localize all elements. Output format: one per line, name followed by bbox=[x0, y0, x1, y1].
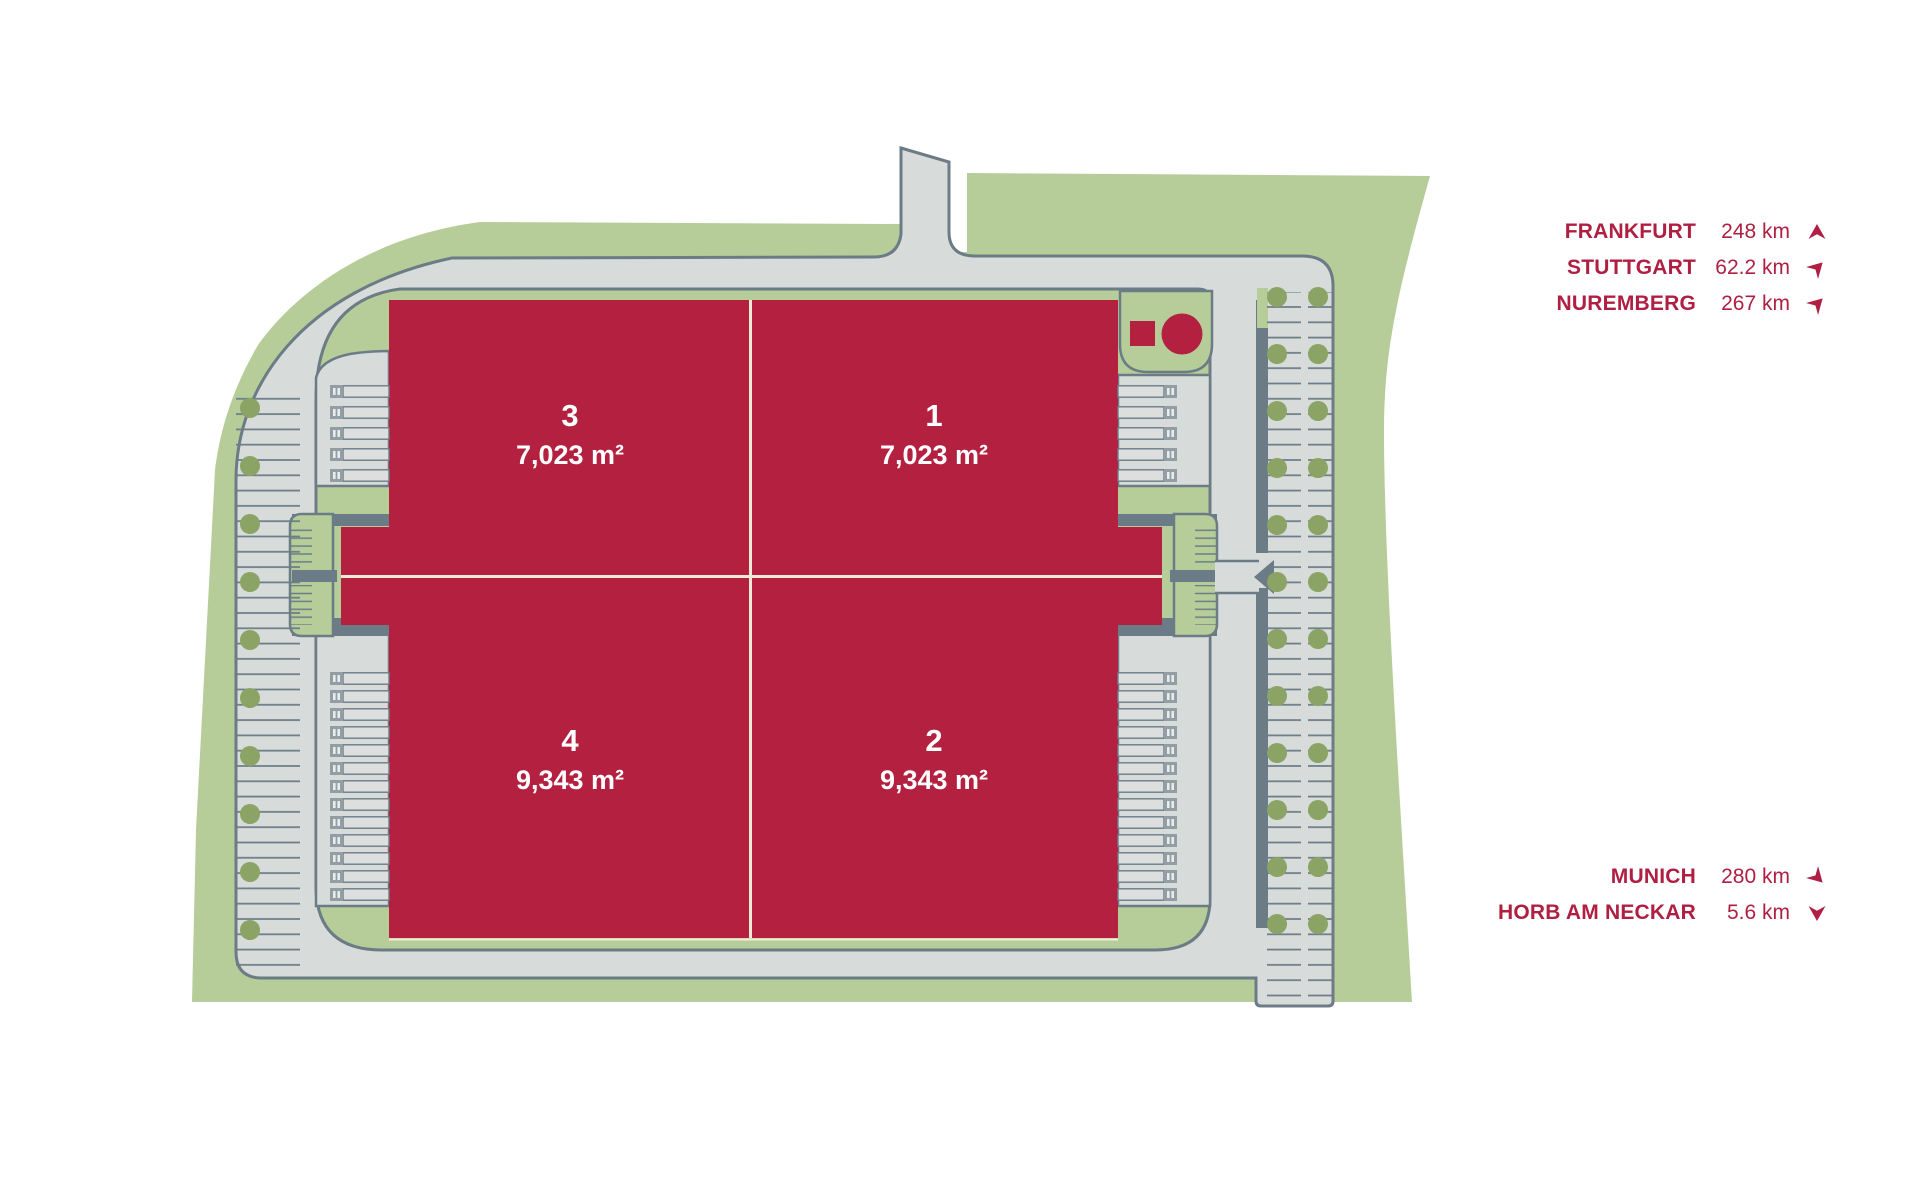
distance-list-north: FRANKFURT 248 km STUTTGART 62.2 km NUREM… bbox=[1557, 214, 1834, 322]
distance-list-south: MUNICH 280 km HORB AM NECKAR 5.6 km bbox=[1498, 859, 1834, 931]
strip-crossing bbox=[1215, 561, 1259, 593]
tree-icon bbox=[1267, 344, 1287, 364]
tree-icon bbox=[1308, 800, 1328, 820]
loading-dock-icon bbox=[1118, 816, 1177, 829]
tree-icon bbox=[1308, 914, 1328, 934]
loading-dock-icon bbox=[330, 798, 389, 811]
tree-icon bbox=[1308, 686, 1328, 706]
route-city: STUTTGART bbox=[1567, 256, 1696, 280]
loading-dock-icon bbox=[330, 870, 389, 883]
loading-dock-icon bbox=[330, 708, 389, 721]
direction-northeast-icon bbox=[1796, 247, 1837, 288]
loading-dock-icon bbox=[330, 744, 389, 757]
loading-dock-icon bbox=[1118, 672, 1177, 685]
loading-dock-icon bbox=[330, 406, 389, 419]
tree-icon bbox=[1308, 458, 1328, 478]
tree-icon bbox=[1308, 515, 1328, 535]
route-city: FRANKFURT bbox=[1565, 220, 1696, 244]
courtyard-square-icon bbox=[1130, 321, 1155, 346]
tree-icon bbox=[240, 804, 260, 824]
unit-4-number: 4 bbox=[561, 723, 579, 758]
loading-dock-icon bbox=[1118, 888, 1177, 901]
loading-dock-icon bbox=[330, 690, 389, 703]
route-city: HORB AM NECKAR bbox=[1498, 901, 1696, 925]
loading-dock-icon bbox=[1118, 798, 1177, 811]
route-stuttgart: STUTTGART 62.2 km bbox=[1557, 250, 1834, 286]
unit-1-area: 7,023 m² bbox=[880, 440, 988, 470]
tree-icon bbox=[1308, 287, 1328, 307]
loading-dock-icon bbox=[1118, 427, 1177, 440]
unit-4-area: 9,343 m² bbox=[516, 765, 624, 795]
unit-2-area: 9,343 m² bbox=[880, 765, 988, 795]
direction-southeast-icon bbox=[1796, 856, 1837, 897]
route-distance: 248 km bbox=[1706, 220, 1790, 244]
route-frankfurt: FRANKFURT 248 km bbox=[1557, 214, 1834, 250]
loading-dock-icon bbox=[1118, 762, 1177, 775]
tree-icon bbox=[1308, 743, 1328, 763]
unit-2-number: 2 bbox=[925, 723, 942, 758]
loading-dock-icon bbox=[330, 780, 389, 793]
route-distance: 62.2 km bbox=[1706, 256, 1790, 280]
loading-dock-icon bbox=[1118, 469, 1177, 482]
loading-dock-icon bbox=[330, 834, 389, 847]
unit-3-area: 7,023 m² bbox=[516, 440, 624, 470]
loading-dock-icon bbox=[330, 448, 389, 461]
strip-wall bbox=[1256, 588, 1268, 928]
tree-icon bbox=[240, 688, 260, 708]
route-distance: 5.6 km bbox=[1706, 901, 1790, 925]
tree-icon bbox=[1267, 401, 1287, 421]
route-horb: HORB AM NECKAR 5.6 km bbox=[1498, 895, 1834, 931]
loading-dock-icon bbox=[1118, 780, 1177, 793]
loading-dock-icon bbox=[330, 762, 389, 775]
building bbox=[389, 300, 1118, 938]
route-city: NUREMBERG bbox=[1557, 292, 1696, 316]
loading-dock-icon bbox=[330, 672, 389, 685]
loading-dock-icon bbox=[330, 726, 389, 739]
tree-icon bbox=[1267, 743, 1287, 763]
tree-icon bbox=[1267, 800, 1287, 820]
route-distance: 280 km bbox=[1706, 865, 1790, 889]
loading-dock-icon bbox=[1118, 708, 1177, 721]
unit-3-number: 3 bbox=[561, 398, 578, 433]
loading-dock-icon bbox=[1118, 834, 1177, 847]
loading-dock-icon bbox=[330, 852, 389, 865]
tree-icon bbox=[1308, 572, 1328, 592]
loading-dock-icon bbox=[1118, 385, 1177, 398]
route-nuremberg: NUREMBERG 267 km bbox=[1557, 286, 1834, 322]
loading-dock-icon bbox=[330, 427, 389, 440]
tree-icon bbox=[1267, 515, 1287, 535]
tree-icon bbox=[1267, 686, 1287, 706]
courtyard-circle-icon bbox=[1162, 314, 1203, 355]
loading-dock-icon bbox=[1118, 448, 1177, 461]
waist-divider-bar bbox=[1170, 570, 1215, 582]
tree-icon bbox=[240, 862, 260, 882]
tree-icon bbox=[240, 746, 260, 766]
route-city: MUNICH bbox=[1611, 865, 1696, 889]
strip-green-sliver bbox=[1257, 288, 1268, 328]
tree-icon bbox=[240, 398, 260, 418]
waist-stalls bbox=[1195, 585, 1217, 625]
site-plan: 3 7,023 m² 1 7,023 m² 4 9,343 m² 2 9,343… bbox=[0, 0, 1920, 1178]
tree-icon bbox=[1267, 629, 1287, 649]
loading-dock-icon bbox=[1118, 744, 1177, 757]
unit-1-number: 1 bbox=[925, 398, 942, 433]
loading-dock-icon bbox=[330, 816, 389, 829]
tree-icon bbox=[240, 630, 260, 650]
direction-northeast-icon bbox=[1796, 283, 1837, 324]
tree-icon bbox=[240, 514, 260, 534]
strip-wall bbox=[1256, 300, 1268, 553]
route-munich: MUNICH 280 km bbox=[1498, 859, 1834, 895]
loading-dock-icon bbox=[330, 888, 389, 901]
direction-south-icon bbox=[1800, 901, 1834, 925]
loading-dock-icon bbox=[330, 385, 389, 398]
tree-icon bbox=[1267, 287, 1287, 307]
site-plan-canvas: 3 7,023 m² 1 7,023 m² 4 9,343 m² 2 9,343… bbox=[0, 0, 1920, 1178]
tree-icon bbox=[240, 456, 260, 476]
tree-icon bbox=[1267, 914, 1287, 934]
loading-dock-icon bbox=[1118, 852, 1177, 865]
tree-icon bbox=[1308, 857, 1328, 877]
loading-dock-icon bbox=[1118, 690, 1177, 703]
tree-icon bbox=[240, 572, 260, 592]
loading-dock-icon bbox=[330, 469, 389, 482]
tree-icon bbox=[1267, 857, 1287, 877]
loading-dock-icon bbox=[1118, 406, 1177, 419]
tree-icon bbox=[1308, 344, 1328, 364]
loading-dock-icon bbox=[1118, 726, 1177, 739]
tree-icon bbox=[1308, 629, 1328, 649]
tree-icon bbox=[1267, 458, 1287, 478]
loading-dock-icon bbox=[1118, 870, 1177, 883]
tree-icon bbox=[240, 920, 260, 940]
direction-north-icon bbox=[1800, 220, 1834, 244]
tree-icon bbox=[1308, 401, 1328, 421]
tree-icon bbox=[1267, 572, 1287, 592]
waist-stalls bbox=[1195, 528, 1217, 568]
route-distance: 267 km bbox=[1706, 292, 1790, 316]
